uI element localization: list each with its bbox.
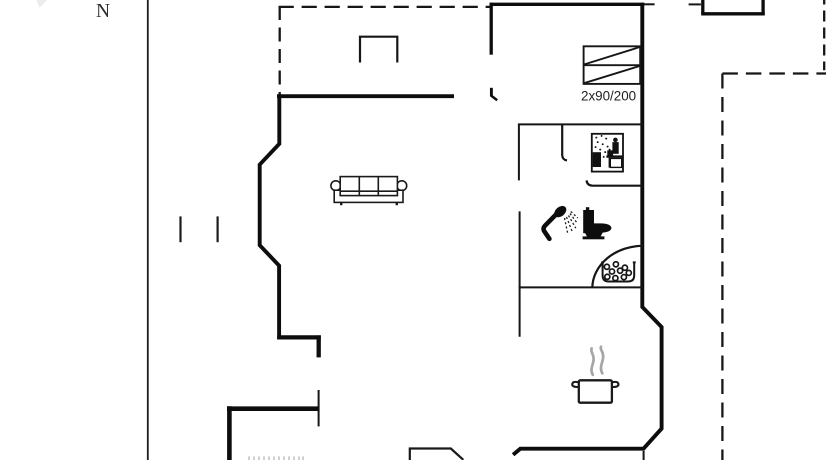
svg-text:2x90/200: 2x90/200 bbox=[581, 88, 636, 103]
svg-text:N: N bbox=[96, 1, 110, 22]
